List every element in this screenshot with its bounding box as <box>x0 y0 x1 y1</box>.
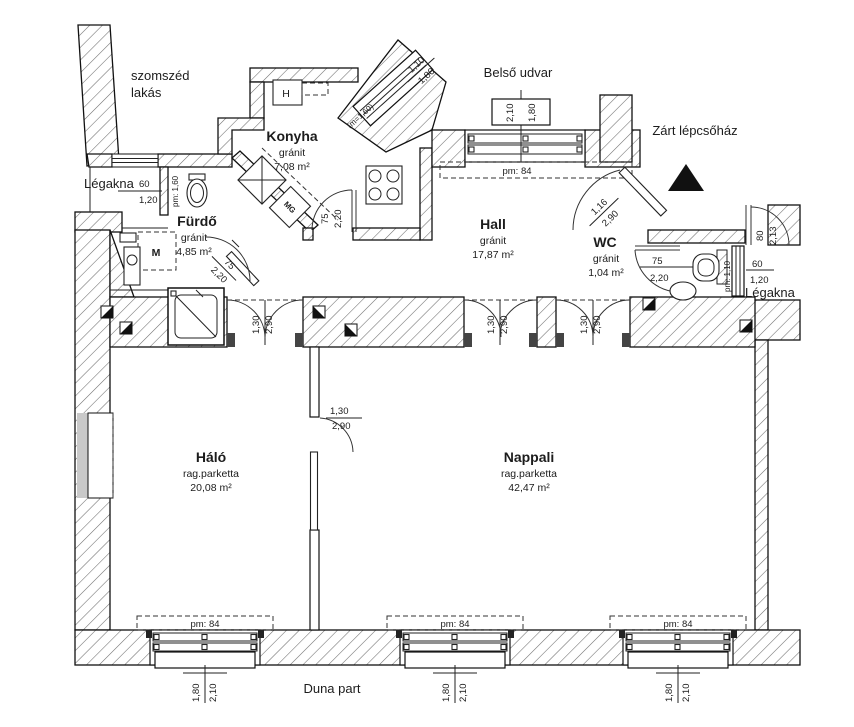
wall-middle-c <box>537 297 556 347</box>
nappali-name: Nappali <box>504 449 555 465</box>
svg-text:2,20: 2,20 <box>650 273 669 284</box>
svg-text:1,30: 1,30 <box>579 316 590 335</box>
floorplan-drawing: Légakna 60 1,20 pm: 1,60 szomszéd lakás … <box>0 0 854 727</box>
neighbor-label: szomszéd lakás <box>131 68 190 100</box>
entrance-triangle-marker <box>668 164 704 191</box>
wall-middle-b <box>303 297 464 347</box>
svg-text:2,10: 2,10 <box>505 104 516 123</box>
wall-kitchen-top <box>250 68 358 82</box>
wall-top-left-b <box>158 154 232 167</box>
hall-area: 17,87 m² <box>472 249 514 261</box>
svg-text:lakás: lakás <box>131 85 162 100</box>
halo-floor: rag.parketta <box>183 468 239 480</box>
nappali-area: 42,47 m² <box>508 482 550 494</box>
nappali-floor: rag.parketta <box>501 468 557 480</box>
halo-name: Háló <box>196 449 226 465</box>
wc-area: 1,04 m² <box>588 267 624 279</box>
svg-text:pm: 84: pm: 84 <box>663 619 692 630</box>
svg-text:2,13: 2,13 <box>768 227 779 246</box>
wc: WC gránit 1,04 m² 75 2,20 pm: 1,10 <box>588 234 744 300</box>
wc-sink <box>670 282 696 300</box>
courtyard-label: Belső udvar <box>484 65 553 80</box>
svg-text:1,80: 1,80 <box>191 684 202 703</box>
svg-text:2,10: 2,10 <box>458 684 469 703</box>
legakna-left-label: Légakna <box>84 176 135 191</box>
halo-nappali-door: 1,30 2,90 <box>311 406 363 530</box>
duna-part-label: Duna part <box>303 681 360 696</box>
svg-text:szomszéd: szomszéd <box>131 68 190 83</box>
svg-text:1,80: 1,80 <box>664 684 675 703</box>
legakna-left-pm: pm: 1,60 <box>171 175 180 207</box>
legakna-right-label: Légakna <box>745 285 796 300</box>
svg-text:1,30: 1,30 <box>330 406 349 417</box>
legakna-left-dim-w: 60 <box>139 179 150 190</box>
courtyard-window: 2,10 1,80 <box>465 90 585 162</box>
halo-nappali-wall: 1,30 2,90 <box>310 347 362 630</box>
hall: Hall gránit 17,87 m² <box>472 216 514 261</box>
svg-text:pm: 84: pm: 84 <box>440 619 469 630</box>
wall-neighbor-column <box>78 25 119 166</box>
wall-kitchen-upleft <box>250 82 264 118</box>
svg-text:2,20: 2,20 <box>333 210 344 229</box>
legakna-left-dim-h: 1,20 <box>139 195 158 206</box>
bottom-window-1: pm: 84 1,80 2,10 <box>137 616 273 703</box>
kitchen-area: 7,08 m² <box>274 161 310 173</box>
wall-top-left-a <box>87 154 112 167</box>
halo-room: Háló rag.parketta 20,08 m² <box>183 449 239 494</box>
bathroom-toilet <box>187 174 207 207</box>
bathroom-floor: gránit <box>181 232 207 244</box>
svg-text:75: 75 <box>320 213 331 224</box>
legakna-right-dim-w: 60 <box>752 259 763 270</box>
svg-text:1,80: 1,80 <box>441 684 452 703</box>
wall-kitchen-bottom-b <box>353 228 420 240</box>
nappali-room: Nappali rag.parketta 42,47 m² <box>501 449 557 494</box>
wall-kitchen-step <box>218 118 264 154</box>
svg-text:1,30: 1,30 <box>486 316 497 335</box>
svg-text:2,10: 2,10 <box>208 684 219 703</box>
hall-name: Hall <box>480 216 506 232</box>
hall-halo-door: 1,30 2,90 <box>227 300 303 347</box>
svg-text:pm: 1,10: pm: 1,10 <box>723 260 732 292</box>
courtyard-window-pm: pm: 84 <box>502 166 531 177</box>
stove <box>366 166 402 204</box>
svg-text:2,10: 2,10 <box>681 684 692 703</box>
h-box-dashed <box>302 83 328 95</box>
left-wall-niche <box>77 413 113 498</box>
bathroom-appliance <box>124 247 140 285</box>
wall-right-thin <box>755 340 768 630</box>
kitchen-floor: gránit <box>279 147 305 159</box>
h-box-label: H <box>282 88 290 100</box>
svg-text:1,80: 1,80 <box>527 104 538 123</box>
svg-text:80: 80 <box>755 230 766 241</box>
bathroom-name: Fürdő <box>177 213 217 229</box>
wall-courtyard-a <box>432 130 465 167</box>
kitchen-door: 75 2,20 <box>312 190 356 232</box>
wc-name: WC <box>593 234 616 250</box>
svg-text:2,90: 2,90 <box>592 316 603 335</box>
wc-floor: gránit <box>593 253 619 265</box>
svg-text:2,90: 2,90 <box>332 421 351 432</box>
svg-text:1,30: 1,30 <box>251 316 262 335</box>
wc-toilet <box>693 250 727 284</box>
bottom-window-3: pm: 84 1,80 2,10 <box>610 616 746 703</box>
hall-nappali-door-1: 1,30 2,90 <box>464 300 537 347</box>
svg-text:2,90: 2,90 <box>264 316 275 335</box>
svg-text:2,90: 2,90 <box>600 208 621 229</box>
wall-kitchen-bottom-a <box>303 228 313 240</box>
wall-wc-top <box>648 230 745 243</box>
floorplan-page: Légakna 60 1,20 pm: 1,60 szomszéd lakás … <box>0 0 854 727</box>
bathroom-area: 4,85 m² <box>176 246 212 258</box>
wall-kitchen-right <box>420 148 432 240</box>
svg-text:pm: 84: pm: 84 <box>190 619 219 630</box>
svg-text:2,90: 2,90 <box>499 316 510 335</box>
svg-text:75: 75 <box>652 256 663 267</box>
wall-stairwell-column <box>600 95 632 162</box>
legakna-left-window <box>112 154 158 167</box>
washing-machine-label: M <box>152 247 161 259</box>
wall-shaft-bottom <box>75 212 122 232</box>
shower <box>168 288 224 345</box>
bottom-window-2: pm: 84 1,80 2,10 <box>387 616 523 703</box>
hall-nappali-door-2: 1,30 2,90 <box>556 300 630 347</box>
kitchen-name: Konyha <box>266 128 318 144</box>
hall-floor: gránit <box>480 235 506 247</box>
halo-area: 20,08 m² <box>190 482 232 494</box>
stairwell-label: Zárt lépcsőház <box>652 123 737 138</box>
